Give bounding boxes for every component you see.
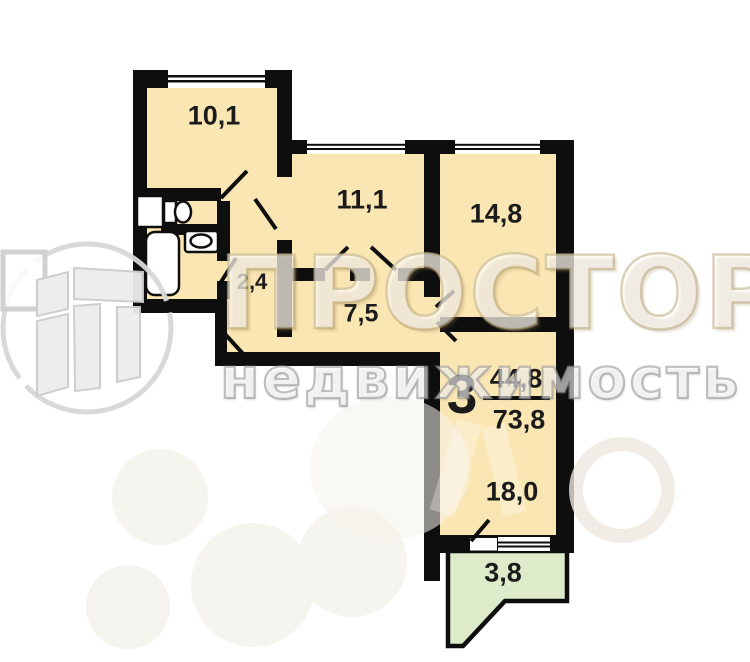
faint-watermark-shapes [86,396,668,649]
wall-bathroom-right-b [217,281,230,299]
wall-kitchen-right [277,70,292,177]
wall-between-bedrooms [424,152,440,297]
room-area-label-balcony: 3,8 [484,558,522,589]
room-area-label-kitchen: 10,1 [188,101,241,132]
room-area-label-living-room: 18,0 [486,477,539,508]
wall-room2-bottom [440,317,556,332]
window-room2 [455,140,540,154]
wall-corridor-bottom [215,352,440,366]
sink-bowl-icon [191,235,212,248]
wall-room1-bottom-c [398,268,424,281]
area-fraction-divider [483,396,550,400]
floor-plan-page: 10,1 11,1 14,8 2,4 7,5 18,0 3,8 3 44,8 7… [0,0,750,662]
wall-niche [137,196,163,227]
window-balcony [498,537,550,551]
faint-ring [576,444,668,536]
agency-logo-watermark [3,244,171,412]
toilet-bowl-icon [175,202,191,223]
window-room1 [307,140,405,154]
wall-bathroom-bottom [133,299,227,313]
bathtub-icon [146,232,179,295]
room-area-label-corridor: 7,5 [344,300,379,329]
living-area-label: 44,8 [490,364,543,395]
logo-letter [37,268,143,396]
room-area-label-hall: 2,4 [237,269,268,295]
room-area-label-room-2: 14,8 [470,199,523,230]
floor-plan-drawing [0,0,750,662]
wall-room1-bottom-b [350,268,370,281]
room-area-label-room-1: 11,1 [336,185,387,216]
window-kitchen [168,70,265,88]
rooms-count-label: 3 [447,362,478,426]
wall-room1-bottom-a [292,268,325,281]
wall-hall-right [277,240,292,337]
total-area-label: 73,8 [493,405,546,436]
